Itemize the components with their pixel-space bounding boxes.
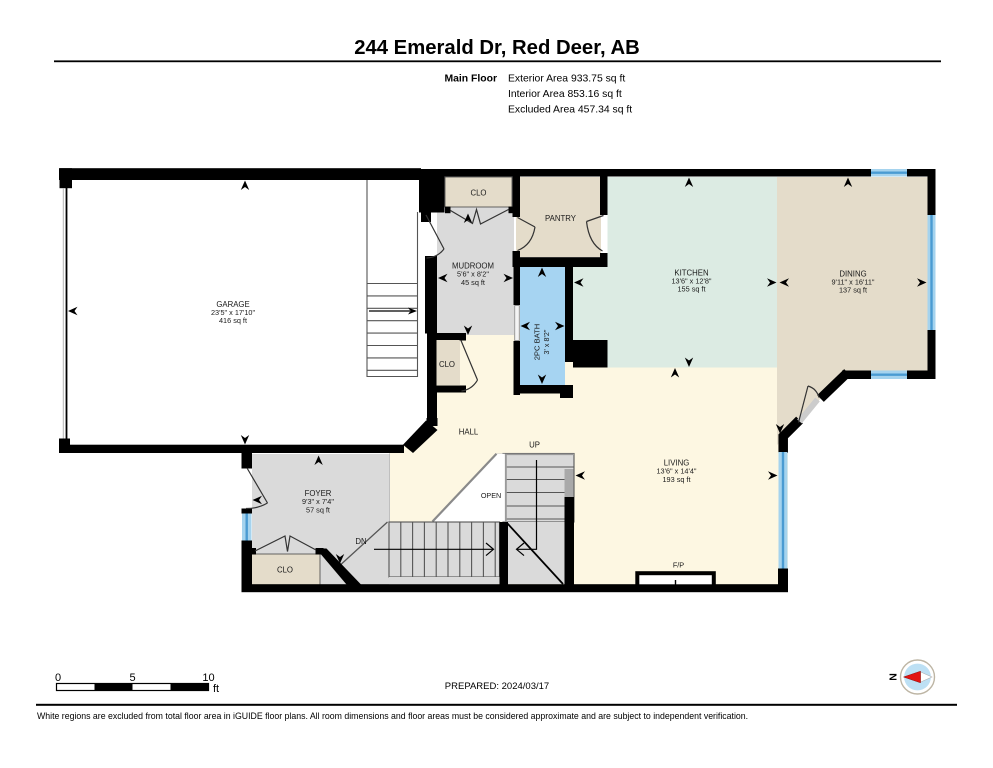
svg-text:CLO: CLO	[439, 360, 455, 369]
svg-text:DN: DN	[355, 537, 366, 546]
svg-text:N: N	[887, 673, 899, 681]
svg-text:137 sq ft: 137 sq ft	[839, 286, 867, 295]
svg-text:244 Emerald Dr, Red Deer, AB: 244 Emerald Dr, Red Deer, AB	[354, 37, 640, 59]
svg-text:White regions are excluded fro: White regions are excluded from total fl…	[37, 711, 748, 721]
svg-text:2PC BATH: 2PC BATH	[533, 324, 542, 361]
svg-text:CLO: CLO	[470, 189, 486, 198]
svg-text:3' x 8'2": 3' x 8'2"	[542, 329, 551, 354]
svg-text:Exterior Area 933.75 sq ft: Exterior Area 933.75 sq ft	[508, 74, 625, 85]
svg-text:155 sq ft: 155 sq ft	[678, 284, 706, 293]
svg-text:193 sq ft: 193 sq ft	[663, 475, 691, 484]
svg-text:HALL: HALL	[459, 428, 479, 437]
svg-text:416 sq ft: 416 sq ft	[219, 316, 247, 325]
svg-text:PANTRY: PANTRY	[545, 214, 577, 223]
svg-text:OPEN: OPEN	[481, 491, 501, 500]
svg-text:0: 0	[55, 672, 61, 684]
svg-text:45 sq ft: 45 sq ft	[461, 278, 485, 287]
svg-text:57 sq ft: 57 sq ft	[306, 506, 330, 515]
svg-text:CLO: CLO	[277, 566, 293, 575]
svg-text:ft: ft	[213, 683, 219, 695]
svg-text:Excluded Area 457.34 sq ft: Excluded Area 457.34 sq ft	[508, 105, 632, 116]
svg-text:F/P: F/P	[673, 561, 684, 570]
svg-text:Main Floor: Main Floor	[444, 74, 497, 85]
svg-text:Interior Area 853.16 sq ft: Interior Area 853.16 sq ft	[508, 89, 622, 100]
svg-text:5: 5	[129, 672, 135, 684]
svg-text:PREPARED: 2024/03/17: PREPARED: 2024/03/17	[445, 681, 549, 692]
svg-text:UP: UP	[529, 441, 540, 450]
